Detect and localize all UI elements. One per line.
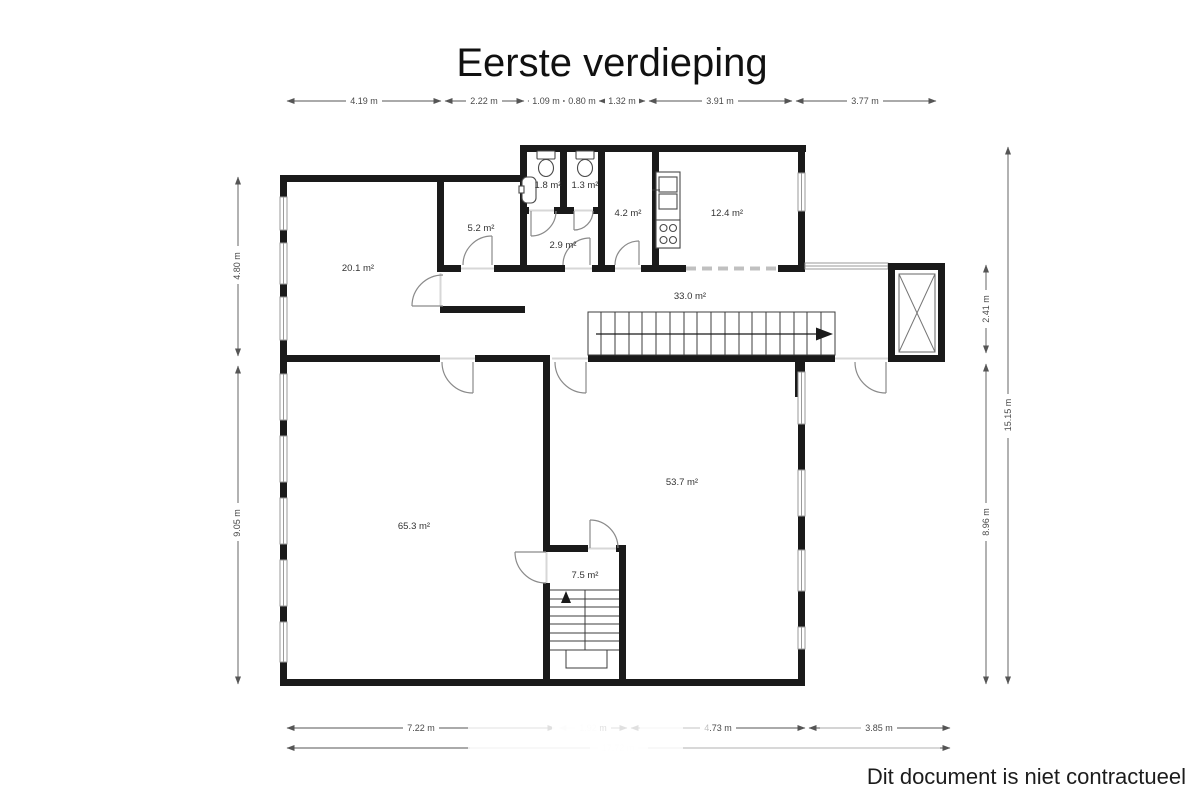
toilet-icon: [537, 151, 555, 177]
dimension-row-top: 4.19 m 2.22 m 1.09 m 0.80 m 1.32 m 3.91 …: [287, 95, 936, 106]
dim-top-3: 1.09 m: [532, 96, 560, 106]
dim-right-lower: 8.96 m: [981, 508, 991, 536]
dimension-col-right: 2.41 m 8.96 m 15.15 m: [980, 147, 1014, 684]
room-label-wc-right: 1.3 m²: [572, 180, 599, 191]
dim-bottom-1: 7.22 m: [407, 723, 435, 733]
watermark-overlay: [468, 712, 940, 770]
corridor-staircase: [588, 312, 835, 355]
room-labels: 20.1 m² 5.2 m² 1.8 m² 1.3 m² 2.9 m² 4.2 …: [342, 180, 743, 581]
windows: [280, 173, 888, 662]
room-label-washroom: 2.9 m²: [550, 240, 577, 251]
walls: [280, 145, 835, 686]
dim-top-7: 3.77 m: [851, 96, 879, 106]
lower-staircase: [550, 590, 619, 668]
floor-plan-canvas: Eerste verdieping: [0, 0, 1200, 801]
dim-bottom-4: 3.85 m: [865, 723, 893, 733]
room-label-living: 20.1 m²: [342, 263, 374, 274]
dim-top-1: 4.19 m: [350, 96, 378, 106]
dim-right-upper: 2.41 m: [981, 295, 991, 323]
floor-plan-page: Eerste verdieping: [0, 0, 1200, 801]
room-label-kitchen: 12.4 m²: [711, 208, 743, 219]
dimension-col-left: 4.80 m 9.05 m: [232, 177, 244, 684]
dim-top-4: 0.80 m: [568, 96, 596, 106]
stair-up-arrow-icon: [561, 591, 571, 603]
room-label-hall-right: 53.7 m²: [666, 477, 698, 488]
room-label-storage: 4.2 m²: [615, 208, 642, 219]
room-label-stair-lobby: 7.5 m²: [572, 570, 599, 581]
toilet-icon: [576, 151, 594, 177]
dim-left-upper: 4.80 m: [232, 252, 242, 280]
room-label-cabinet: 5.2 m²: [468, 223, 495, 234]
room-label-hallway: 33.0 m²: [674, 291, 706, 302]
room-label-hall-left: 65.3 m²: [398, 521, 430, 532]
dim-top-6: 3.91 m: [706, 96, 734, 106]
room-label-wc-left: 1.8 m²: [535, 180, 562, 191]
dim-top-5: 1.32 m: [608, 96, 636, 106]
stove-icon: [656, 220, 680, 248]
dim-right-total: 15.15 m: [1003, 399, 1013, 432]
washbasin-icon: [519, 177, 536, 203]
disclaimer-text: Dit document is niet contractueel: [867, 764, 1186, 789]
page-title: Eerste verdieping: [456, 41, 767, 85]
window: [280, 173, 888, 662]
dim-top-2: 2.22 m: [470, 96, 498, 106]
elevator-shaft: [888, 263, 945, 362]
dim-left-lower: 9.05 m: [232, 509, 242, 537]
